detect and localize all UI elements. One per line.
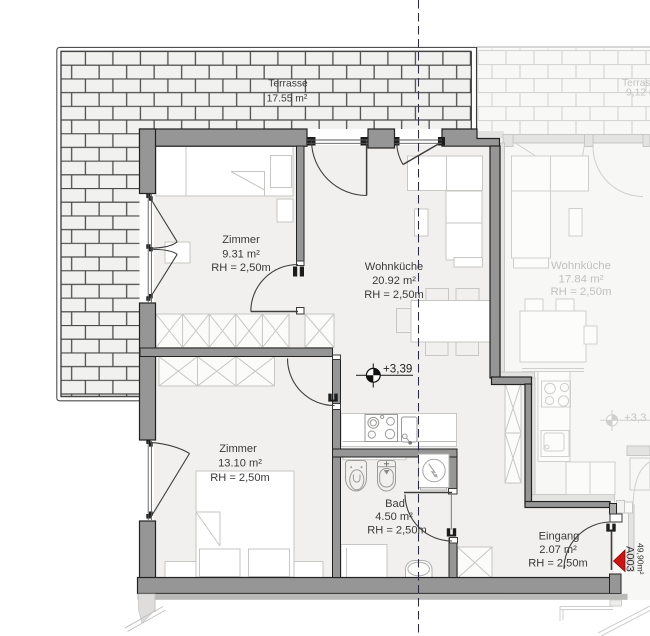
svg-text:Wohnküche: Wohnküche [551, 260, 611, 272]
svg-text:RH = 2,50m: RH = 2,50m [210, 472, 270, 484]
svg-text:+3,3: +3,3 [624, 412, 647, 424]
svg-text:49,90m²: 49,90m² [636, 543, 646, 575]
svg-text:A003: A003 [624, 546, 636, 572]
svg-text:Wohnküche: Wohnküche [365, 261, 423, 273]
svg-text:9,12 m²: 9,12 m² [626, 88, 650, 99]
svg-text:+3,39: +3,39 [383, 363, 412, 376]
svg-text:RH = 2,50m: RH = 2,50m [211, 262, 271, 274]
svg-text:4.50 m²: 4.50 m² [375, 511, 413, 523]
svg-text:RH = 2,50m: RH = 2,50m [364, 289, 424, 301]
svg-text:Zimmer: Zimmer [219, 443, 257, 455]
svg-text:9.31 m²: 9.31 m² [222, 249, 260, 261]
svg-text:20.92 m²: 20.92 m² [372, 275, 416, 287]
svg-text:RH = 2,50m: RH = 2,50m [528, 558, 588, 570]
svg-text:Zimmer: Zimmer [222, 234, 260, 246]
svg-text:Terrasse: Terrasse [268, 79, 308, 90]
svg-text:Eingang: Eingang [539, 531, 580, 543]
svg-text:17.55 m²: 17.55 m² [267, 94, 308, 105]
svg-text:13.10 m²: 13.10 m² [218, 458, 262, 470]
svg-text:RH = 2,50m: RH = 2,50m [550, 286, 611, 298]
svg-text:Bad: Bad [385, 498, 405, 510]
svg-text:2.07 m²: 2.07 m² [539, 544, 577, 556]
svg-text:17.84 m²: 17.84 m² [559, 274, 604, 286]
svg-text:RH = 2,50m: RH = 2,50m [367, 525, 427, 537]
